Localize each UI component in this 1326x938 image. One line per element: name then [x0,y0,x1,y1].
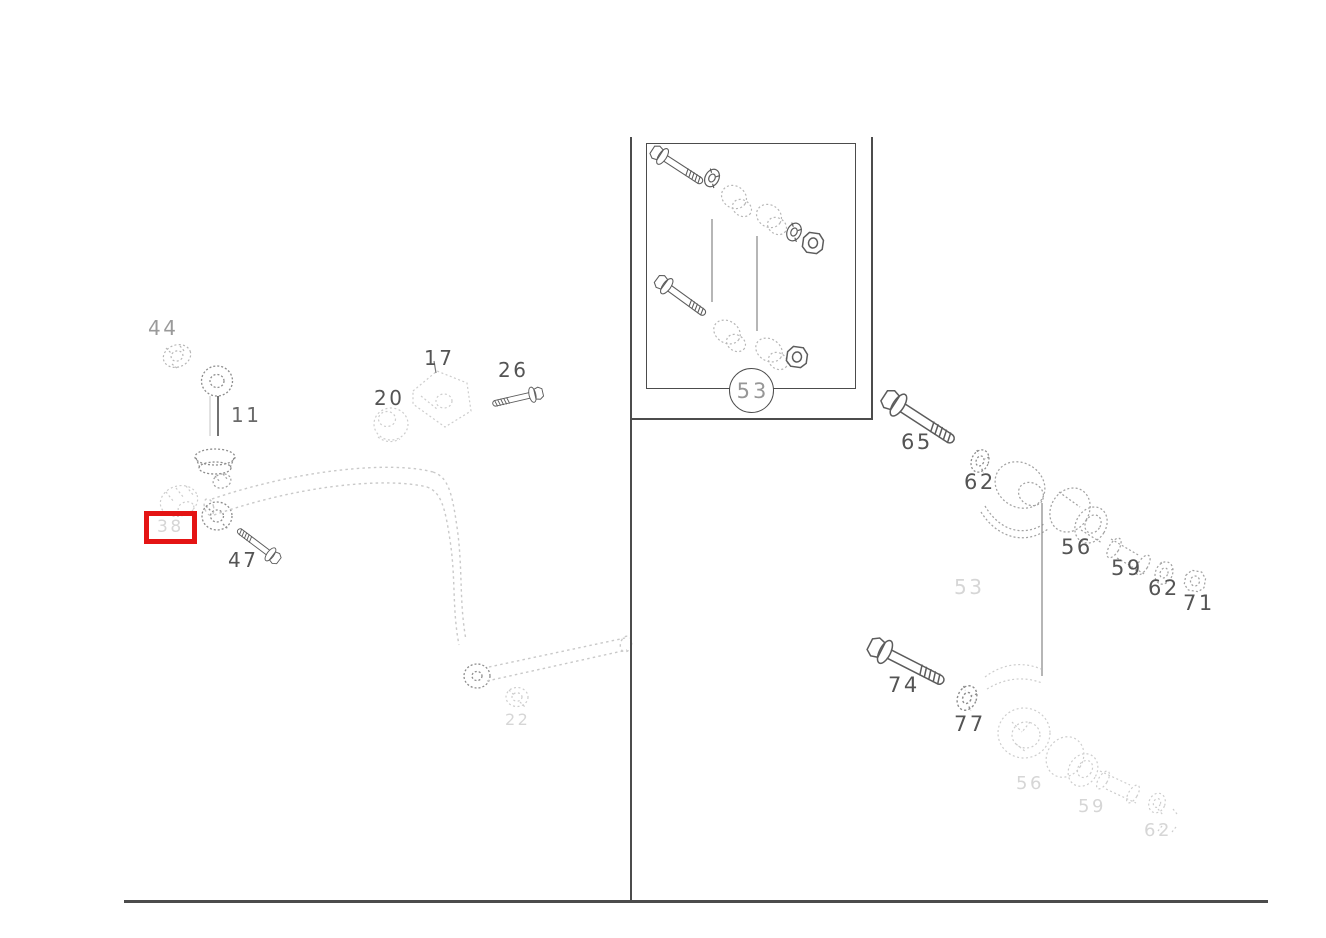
inset-detail-box [646,143,856,389]
bracket-17-drawing [413,361,471,427]
exploded-parts-drawing [0,0,1326,938]
inset-badge-53[interactable]: 53 [729,368,774,413]
callout-71[interactable]: 71 [1183,593,1215,614]
callout-77[interactable]: 77 [954,714,986,735]
callout-22[interactable]: 22 [505,712,530,728]
inset-bottom-frame-line [630,418,873,420]
callout-62-upper[interactable]: 62 [964,472,996,493]
ring-77-drawing [954,683,981,713]
callout-56-lower[interactable]: 56 [1016,775,1044,793]
inset-right-frame-line [871,137,873,420]
bolt-26-drawing [491,385,544,412]
callout-47[interactable]: 47 [228,550,258,570]
center-divider-line [630,137,632,902]
bushing-20-drawing [374,408,408,442]
bushing-bracket-upper-drawing [981,452,1054,537]
callout-26[interactable]: 26 [498,360,528,380]
callout-62-lower[interactable]: 62 [1144,822,1172,840]
callout-20[interactable]: 20 [374,388,404,408]
bar-eye-ring-drawing [202,502,232,530]
callout-59-lower[interactable]: 59 [1078,798,1106,816]
stabilizer-bar-drawing [202,467,633,688]
nut-44-drawing [160,341,194,371]
callout-11[interactable]: 11 [231,405,261,425]
footer-rule [124,900,1268,903]
callout-56-upper[interactable]: 56 [1061,537,1093,558]
inset-badge-label: 53 [737,379,770,403]
callout-44[interactable]: 44 [148,318,178,338]
parts-catalog-page: { "palette": { "highlight_red": "#e41414… [0,0,1326,938]
callout-53-link[interactable]: 53 [954,577,984,597]
callout-62-mid[interactable]: 62 [1148,578,1180,599]
selected-part-highlight-box [144,511,197,544]
callout-65[interactable]: 65 [901,432,933,453]
callout-17[interactable]: 17 [424,348,454,368]
callout-59-upper[interactable]: 59 [1111,558,1143,579]
nut-71-drawing [1183,569,1206,592]
nut-22-drawing [506,688,528,708]
callout-74[interactable]: 74 [888,675,920,696]
link-11-drawing [195,366,235,490]
